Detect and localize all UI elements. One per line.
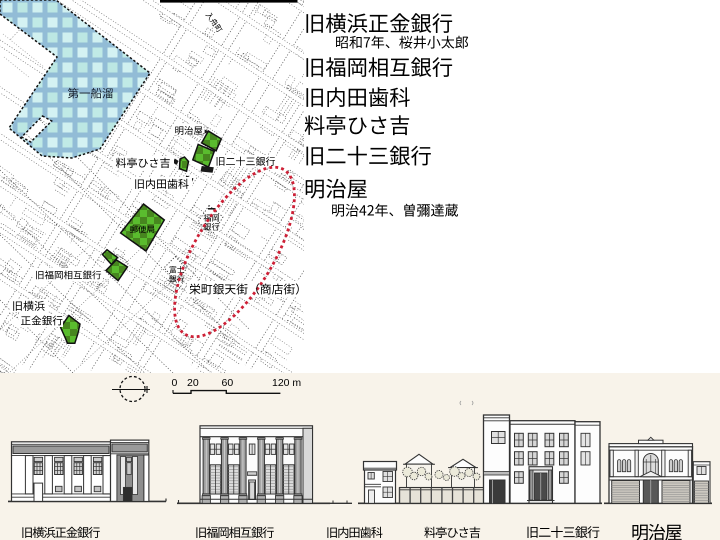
svg-text:0: 0 (172, 377, 178, 389)
svg-text:120 m: 120 m (272, 377, 301, 389)
svg-text:60: 60 (222, 377, 234, 389)
svg-text:20: 20 (187, 377, 199, 389)
